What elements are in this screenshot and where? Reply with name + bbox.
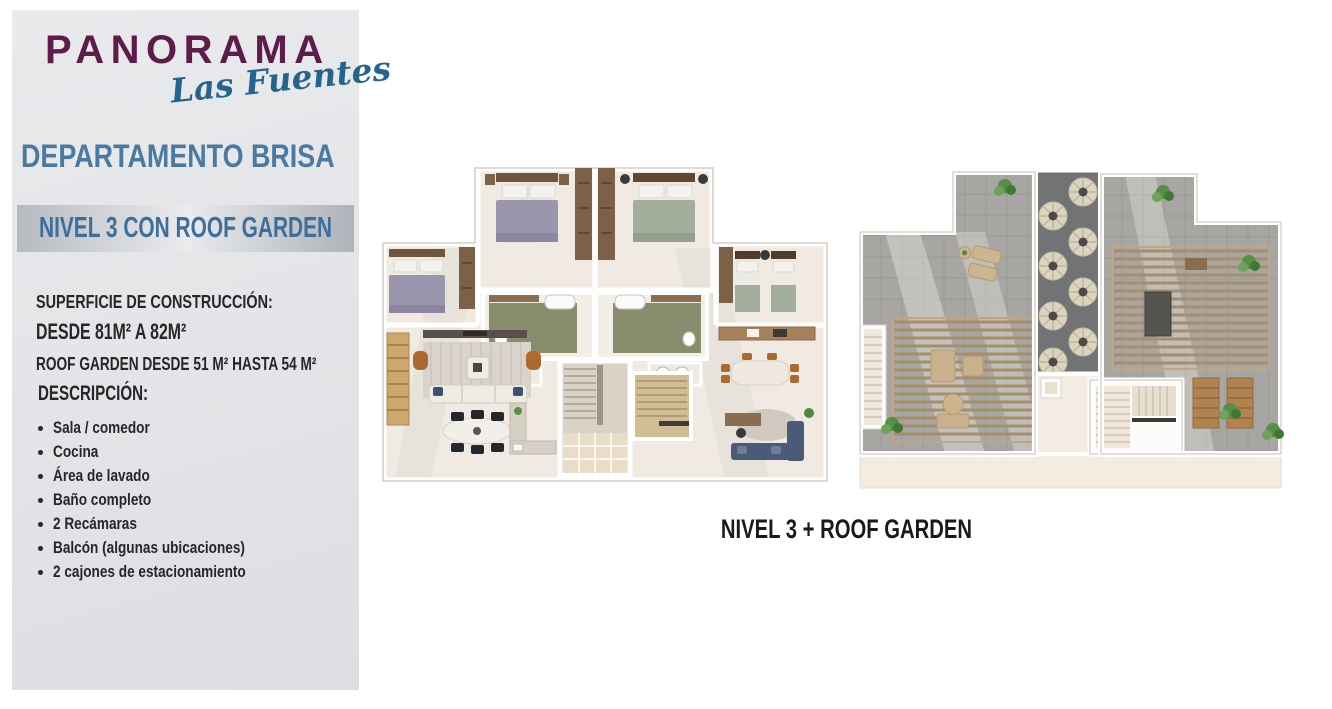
surface-range: DESDE 81M² A 82M² [36, 320, 186, 344]
info-sidebar: PANORAMA Las Fuentes DEPARTAMENTO BRISA … [12, 10, 359, 690]
list-item: Balcón (algunas ubicaciones) [38, 536, 294, 560]
bullet-icon [38, 426, 43, 431]
page-title: DEPARTAMENTO BRISA [21, 138, 335, 175]
surface-roof-garden: ROOF GARDEN DESDE 51 M² HASTA 54 M² [36, 352, 316, 376]
bullet-icon [38, 474, 43, 479]
floor-plan-roof-garden-image [845, 162, 1295, 492]
description-heading: DESCRIPCIÓN: [38, 382, 148, 406]
stairs-left [860, 325, 886, 429]
surface-block: SUPERFICIE DE CONSTRUCCIÓN: DESDE 81M² A… [36, 290, 405, 378]
list-item: 2 Recámaras [38, 512, 294, 536]
bullet-icon [38, 498, 43, 503]
floor-plan-nivel3-image [375, 163, 835, 493]
description-block: DESCRIPCIÓN: Sala / comedor Cocina Área … [38, 382, 294, 584]
list-item: Sala / comedor [38, 416, 294, 440]
list-item: Área de lavado [38, 464, 294, 488]
brochure-page: PANORAMA Las Fuentes DEPARTAMENTO BRISA … [0, 0, 1332, 709]
bedroom-left-wing [389, 247, 475, 313]
list-item: Cocina [38, 440, 294, 464]
level-banner: NIVEL 3 CON ROOF GARDEN [17, 205, 354, 252]
surface-heading: SUPERFICIE DE CONSTRUCCIÓN: [36, 290, 273, 314]
ground-apron [860, 454, 1281, 488]
description-list: Sala / comedor Cocina Área de lavado Bañ… [38, 416, 294, 584]
bullet-icon [38, 450, 43, 455]
list-item: 2 cajones de estacionamiento [38, 560, 294, 584]
plans-caption: NIVEL 3 + ROOF GARDEN [546, 514, 1146, 545]
bullet-icon [38, 570, 43, 575]
stair-core [560, 361, 630, 475]
list-item: Baño completo [38, 488, 294, 512]
bedroom-right-wing [719, 247, 796, 312]
stair-right-unit [633, 373, 691, 439]
level-banner-label: NIVEL 3 CON ROOF GARDEN [39, 212, 332, 245]
umbrella-strip [1035, 170, 1101, 376]
bullet-icon [38, 546, 43, 551]
bullet-icon [38, 522, 43, 527]
